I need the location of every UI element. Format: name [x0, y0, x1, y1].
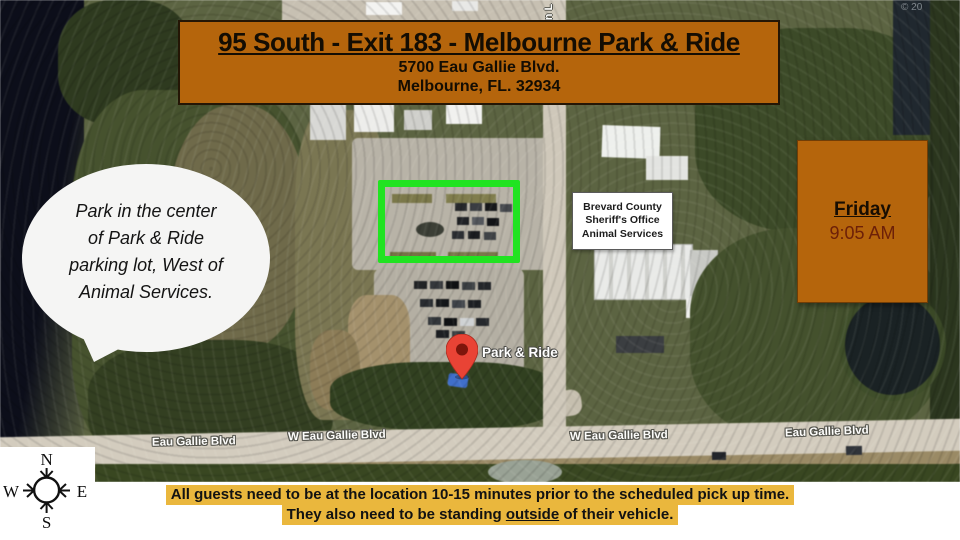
map-car — [420, 299, 433, 307]
map-car — [478, 282, 491, 290]
callout-line: Animal Services. — [38, 279, 254, 306]
schedule-time: 9:05 AM — [829, 223, 895, 244]
map-car — [436, 299, 449, 307]
schedule-box: Friday 9:05 AM — [797, 140, 928, 303]
map-car — [428, 317, 441, 325]
poi-line: Animal Services — [582, 228, 663, 242]
map-building — [690, 250, 718, 296]
map-building — [646, 156, 688, 180]
slide: Eau Gallie Blvd W Eau Gallie Blvd W Eau … — [0, 0, 960, 540]
map-van — [616, 336, 664, 353]
callout-text: Park in the center of Park & Ride parkin… — [38, 198, 254, 306]
parking-highlight-box — [378, 180, 520, 263]
banner-title: 95 South - Exit 183 - Melbourne Park & R… — [218, 27, 740, 58]
map-trees-patch — [58, 0, 193, 125]
map-building — [700, 138, 728, 156]
map-car — [452, 300, 465, 308]
map-road-top — [282, 0, 544, 22]
road-label: W Eau Gallie Blvd — [288, 429, 386, 444]
poi-line: Sheriff's Office — [585, 214, 659, 228]
callout-line: Park in the center — [38, 198, 254, 225]
map-pin-icon — [446, 334, 478, 380]
poi-label-animal-services: Brevard County Sheriff's Office Animal S… — [572, 192, 673, 250]
map-veg-strip-right — [930, 0, 960, 465]
map-building — [310, 100, 346, 140]
footer-line2-prefix: They also need to be standing — [287, 506, 506, 523]
callout-line: parking lot, West of — [38, 252, 254, 279]
map-pond-bottom — [488, 460, 562, 482]
map-driveway — [469, 388, 584, 429]
schedule-day: Friday — [834, 199, 891, 221]
poi-line: Brevard County — [583, 201, 662, 215]
title-banner: 95 South - Exit 183 - Melbourne Park & R… — [178, 20, 780, 105]
map-water-topright — [893, 0, 960, 135]
map-car — [414, 281, 427, 289]
map-car — [476, 318, 489, 326]
road-label: W Eau Gallie Blvd — [570, 429, 668, 443]
map-car — [446, 281, 459, 289]
map-trucks-row — [686, 298, 742, 318]
footer-line2: They also need to be standing outside of… — [282, 505, 679, 525]
map-car — [462, 282, 475, 290]
map-dirt-patch — [310, 330, 360, 410]
banner-address-line2: Melbourne, FL. 32934 — [180, 77, 778, 96]
map-truck — [366, 2, 402, 15]
map-building — [404, 110, 432, 130]
footer-line2-suffix: of their vehicle. — [559, 506, 673, 523]
compass-n: N — [40, 450, 52, 469]
map-car — [468, 300, 481, 308]
map-car — [712, 452, 726, 460]
road-label: Eau Gallie Blvd — [152, 435, 236, 448]
map-car — [444, 318, 457, 326]
map-car — [430, 281, 443, 289]
callout-line: of Park & Ride — [38, 225, 254, 252]
pin-label: Park & Ride — [482, 345, 558, 360]
map-building-animal-services — [594, 244, 693, 300]
map-car — [846, 446, 862, 455]
footer-line2-underlined: outside — [506, 506, 559, 523]
map-truck — [452, 1, 478, 11]
map-driveway — [436, 386, 476, 434]
map-dirt-patch — [348, 295, 410, 395]
map-car — [460, 318, 474, 326]
footer-notice: All guests need to be at the location 10… — [0, 485, 960, 525]
map-field-patch — [295, 110, 387, 420]
map-road-shoulder — [0, 451, 960, 482]
map-veg-bottom — [95, 464, 960, 482]
map-building — [354, 104, 394, 132]
footer-line1: All guests need to be at the location 10… — [166, 485, 794, 505]
map-attribution: © 20 — [901, 2, 922, 13]
map-building — [601, 125, 660, 159]
banner-address-line1: 5700 Eau Gallie Blvd. — [180, 58, 778, 77]
map-pond-right — [845, 295, 940, 395]
